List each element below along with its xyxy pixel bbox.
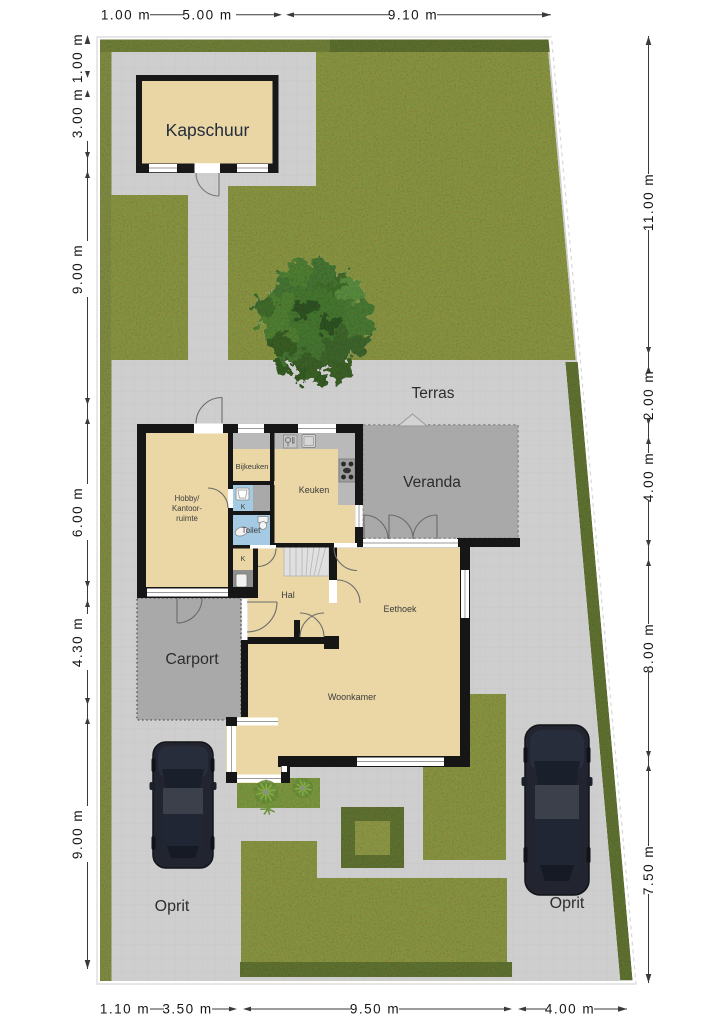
svg-text:2.00 m: 2.00 m xyxy=(641,370,656,420)
svg-text:Bijkeuken: Bijkeuken xyxy=(236,462,269,471)
svg-text:3.50 m: 3.50 m xyxy=(162,1002,212,1017)
svg-text:1.10 m: 1.10 m xyxy=(100,1002,150,1017)
svg-text:4.30 m: 4.30 m xyxy=(70,617,85,667)
svg-text:4.00 m: 4.00 m xyxy=(641,452,656,502)
svg-text:8.00 m: 8.00 m xyxy=(641,623,656,673)
svg-text:Woonkamer: Woonkamer xyxy=(328,692,376,702)
svg-text:Terras: Terras xyxy=(411,385,454,402)
svg-text:3.00 m: 3.00 m xyxy=(70,88,85,138)
svg-text:Toilet: Toilet xyxy=(242,526,261,535)
svg-text:Hobby/: Hobby/ xyxy=(175,494,201,503)
svg-text:Veranda: Veranda xyxy=(403,474,461,491)
svg-text:9.00 m: 9.00 m xyxy=(70,244,85,294)
svg-text:1.00 m: 1.00 m xyxy=(70,33,85,83)
svg-text:1.00 m: 1.00 m xyxy=(101,8,151,23)
svg-text:5.00 m: 5.00 m xyxy=(182,8,232,23)
svg-text:Oprit: Oprit xyxy=(550,895,585,912)
svg-text:7.50 m: 7.50 m xyxy=(641,845,656,895)
svg-text:Carport: Carport xyxy=(165,651,219,668)
svg-text:Hal: Hal xyxy=(281,590,295,600)
svg-text:Eethoek: Eethoek xyxy=(383,604,417,614)
svg-text:K: K xyxy=(241,556,246,563)
svg-text:9.00 m: 9.00 m xyxy=(70,809,85,859)
svg-text:4.00 m: 4.00 m xyxy=(545,1002,595,1017)
svg-text:Keuken: Keuken xyxy=(299,485,330,495)
svg-text:9.50 m: 9.50 m xyxy=(350,1002,400,1017)
svg-text:Kantoor-: Kantoor- xyxy=(172,504,202,513)
svg-text:Oprit: Oprit xyxy=(155,898,190,915)
svg-text:9.10 m: 9.10 m xyxy=(388,8,438,23)
svg-text:K: K xyxy=(241,504,246,511)
svg-text:ruimte: ruimte xyxy=(176,514,198,523)
svg-text:Kapschuur: Kapschuur xyxy=(166,120,250,140)
svg-text:6.00 m: 6.00 m xyxy=(70,487,85,537)
svg-text:11.00 m: 11.00 m xyxy=(641,173,656,231)
